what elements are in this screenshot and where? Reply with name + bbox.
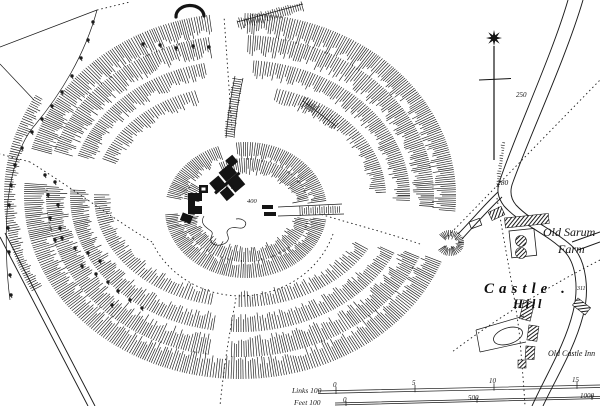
west-gate-block	[188, 199, 195, 206]
spot-height-311: 311	[576, 286, 586, 292]
track-east-gate	[320, 214, 420, 244]
label-castle: Castle .	[484, 281, 570, 297]
old-sarum-earthworks-map: Old Sarum Farm Castle . Hill Old Castle …	[0, 0, 600, 406]
label-keep: KEEP	[214, 185, 236, 191]
farm-round-feature	[516, 248, 527, 259]
west-gate-block	[188, 206, 202, 214]
small-building-court	[202, 188, 206, 191]
north-arrow-icon	[479, 30, 511, 160]
north-crossbar	[479, 79, 511, 81]
inn-outbuilding	[518, 360, 526, 368]
spot-height-250: 250	[516, 91, 527, 99]
label-hill: Hill	[512, 296, 544, 311]
feet-scale-title: Feet 100	[293, 398, 321, 406]
label-old-sarum: Old Sarum	[543, 225, 596, 239]
east-bridge-edge1	[278, 204, 342, 207]
feet-tick-1000: 1000	[580, 392, 595, 400]
track-west	[30, 162, 152, 242]
hedge-line	[0, 64, 34, 100]
track-west-exit	[0, 154, 30, 162]
links-tick-10: 10	[489, 377, 497, 385]
inn-pond	[491, 324, 524, 348]
west-gate-block	[180, 212, 193, 224]
track-south	[220, 298, 236, 406]
farm-round-feature	[516, 236, 527, 247]
inn-building	[525, 346, 535, 360]
inn-building	[527, 325, 539, 341]
links-tick-5: 5	[412, 379, 416, 387]
feet-tick-0: 0	[343, 396, 347, 404]
spot-height-280: 280	[497, 178, 509, 187]
boundary-line	[0, 10, 97, 47]
main-road-west-edge	[498, 0, 576, 406]
main-road-east-edge	[511, 0, 587, 406]
north-star	[486, 30, 502, 46]
scale-bars	[318, 382, 600, 406]
links-scale-bar	[318, 385, 600, 394]
label-old-castle-inn: Old Castle Inn	[548, 349, 595, 358]
paddock-fences	[476, 316, 526, 352]
map-canvas: Old Sarum Farm Castle . Hill Old Castle …	[0, 0, 600, 406]
spot-height-400: 400	[247, 198, 258, 205]
feet-tick-500: 500	[468, 394, 479, 402]
links-scale-title: Links 100	[291, 386, 322, 395]
east-bridge-edge2	[278, 214, 344, 216]
farm-buildings	[469, 206, 549, 258]
links-tick-0: 0	[333, 381, 337, 389]
north-causeway-edge2	[234, 78, 243, 138]
links-tick-15: 15	[572, 376, 580, 384]
quarry-arc-feature	[176, 5, 204, 17]
east-gate-block	[262, 205, 273, 209]
keep-buildings	[203, 155, 253, 204]
east-gate-block	[264, 212, 276, 216]
label-farm: Farm	[557, 242, 585, 256]
boundary-dotted	[97, 2, 130, 10]
